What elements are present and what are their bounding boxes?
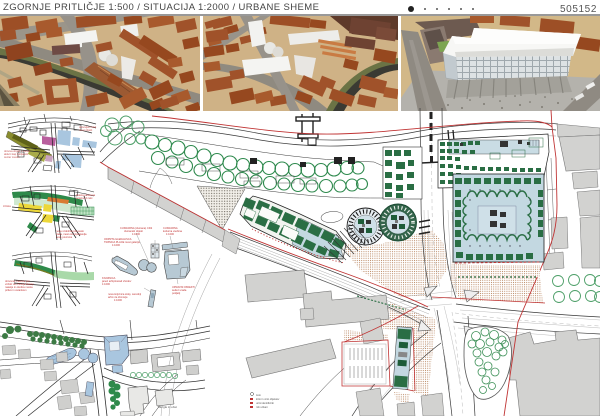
svg-text:podjetij: podjetij — [172, 291, 181, 295]
svg-text:mest objekt: mest objekt — [79, 128, 93, 132]
svg-text:505152: 505152 — [560, 4, 597, 15]
svg-text:1:1000: 1:1000 — [132, 232, 140, 236]
svg-text:zelo: zelo — [256, 393, 261, 397]
svg-text:center mestni: center mestni — [4, 155, 20, 159]
svg-text:ZGORNJE PRITLIČJE 1:500 / SITU: ZGORNJE PRITLIČJE 1:500 / SITUACIJA 1:20… — [3, 2, 319, 13]
svg-text:prilive in ostankom: prilive in ostankom — [5, 288, 26, 292]
svg-text:1:1000: 1:1000 — [166, 232, 174, 236]
svg-text:rob urbani: rob urbani — [256, 405, 268, 409]
svg-text:TRZNICA PLACE mest galerija: TRZNICA PLACE mest galerija — [104, 240, 140, 244]
svg-text:nove povrsine: nove povrsine — [56, 235, 73, 239]
svg-text:krilo in vrsti objektov: krilo in vrsti objektov — [256, 397, 280, 401]
svg-text:1:1000: 1:1000 — [102, 282, 110, 286]
svg-text:trznica: trznica — [3, 204, 11, 208]
svg-text:urini identificirki: urini identificirki — [256, 401, 274, 405]
svg-text:1:1000: 1:1000 — [114, 298, 122, 302]
svg-text:1:1000: 1:1000 — [112, 243, 120, 247]
svg-text:poteza ob reki: poteza ob reki — [76, 196, 93, 200]
